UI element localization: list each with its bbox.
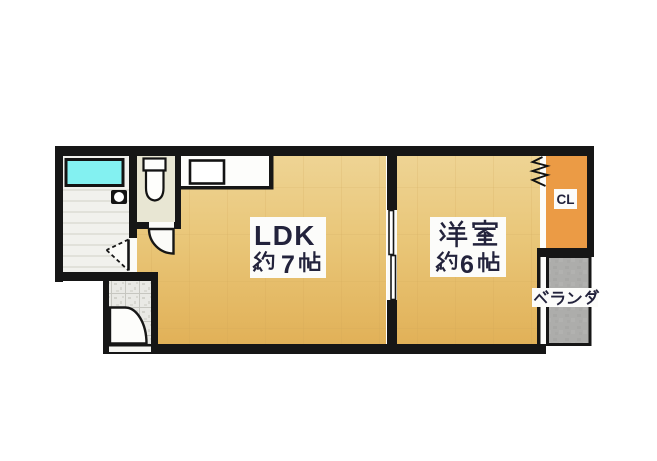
svg-text:7: 7 (281, 251, 295, 279)
svg-text:LDK: LDK (254, 220, 316, 251)
svg-text:CL: CL (557, 192, 575, 207)
svg-text:6: 6 (460, 251, 474, 279)
